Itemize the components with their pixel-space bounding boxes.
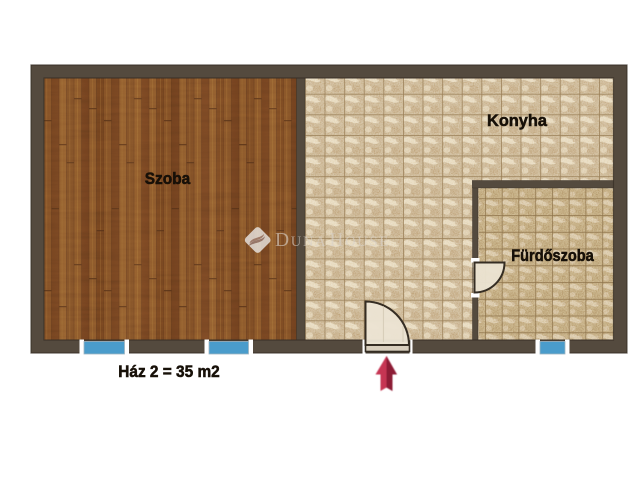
- svg-text:DUNAHOUSE: DUNAHOUSE: [275, 230, 390, 251]
- svg-text:Ház 2 = 35 m2: Ház 2 = 35 m2: [118, 362, 220, 381]
- svg-text:Konyha: Konyha: [487, 112, 548, 130]
- svg-text:Fürdőszoba: Fürdőszoba: [511, 247, 594, 265]
- svg-text:Szoba: Szoba: [145, 170, 191, 188]
